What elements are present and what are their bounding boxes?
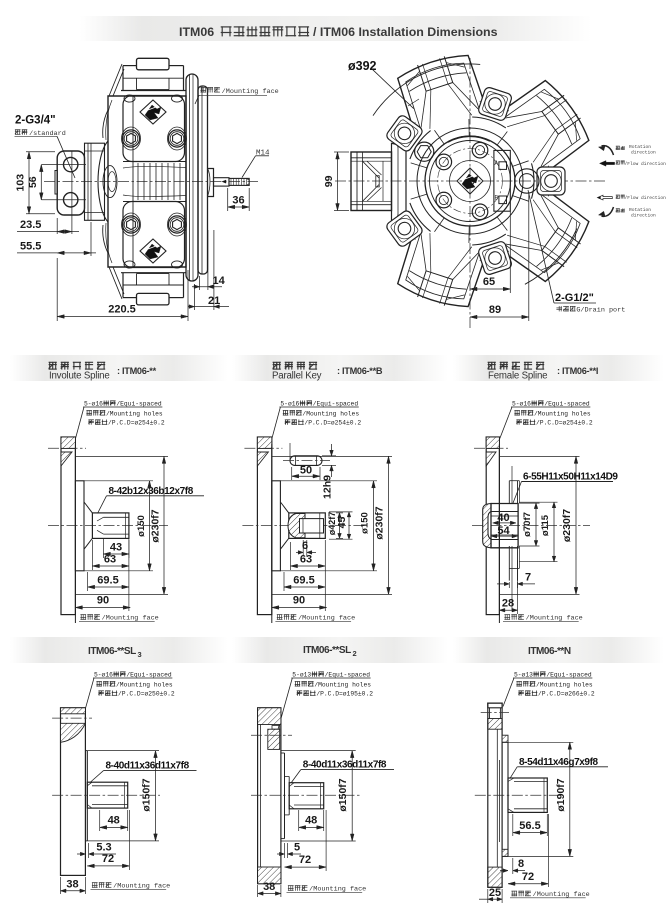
svg-text:: ITM06-**: : ITM06-** — [117, 366, 157, 376]
svg-text:14: 14 — [213, 275, 226, 287]
svg-text:28: 28 — [502, 598, 514, 610]
svg-text:ø190f7: ø190f7 — [555, 778, 567, 811]
svg-text:65: 65 — [483, 276, 495, 288]
svg-text:/Flow direction: /Flow direction — [625, 161, 667, 167]
svg-text:ITM06-**N: ITM06-**N — [528, 646, 571, 657]
svg-text:ITM06-**SL: ITM06-**SL — [88, 646, 136, 657]
svg-text:2-G1/2": 2-G1/2" — [555, 292, 594, 304]
svg-text:G/Drain port: G/Drain port — [576, 307, 625, 315]
svg-text:/P.C.D=ø195±0.2: /P.C.D=ø195±0.2 — [316, 691, 373, 698]
svg-text:8: 8 — [518, 858, 524, 870]
svg-text:/Mounting holes: /Mounting holes — [106, 410, 163, 417]
svg-text:54: 54 — [497, 525, 510, 537]
svg-text:ø150f7: ø150f7 — [337, 778, 349, 811]
svg-text:/P.C.D=ø254±0.2: /P.C.D=ø254±0.2 — [108, 420, 165, 427]
svg-text:/Mounting face: /Mounting face — [222, 88, 279, 96]
svg-text:63: 63 — [300, 554, 312, 566]
svg-text:: ITM06-**I: : ITM06-**I — [557, 366, 598, 376]
svg-text:63: 63 — [104, 554, 116, 566]
svg-text:5-ø16: 5-ø16 — [512, 401, 531, 408]
svg-text:55.5: 55.5 — [20, 240, 41, 252]
svg-text:5.3: 5.3 — [96, 842, 111, 854]
svg-text:6: 6 — [302, 540, 308, 552]
svg-text:/Mounting holes: /Mounting holes — [536, 681, 593, 688]
svg-text:90: 90 — [293, 595, 305, 607]
svg-text:/Equi-spaced: /Equi-spaced — [313, 401, 359, 408]
svg-text:5-ø13: 5-ø13 — [292, 672, 311, 679]
svg-text:89: 89 — [489, 304, 501, 316]
svg-text:ø70f7: ø70f7 — [522, 512, 533, 537]
svg-text:ø115: ø115 — [540, 514, 551, 536]
svg-text:12h9: 12h9 — [322, 475, 334, 499]
svg-text:48: 48 — [108, 815, 120, 827]
svg-text:69.5: 69.5 — [293, 575, 314, 587]
svg-text:25: 25 — [489, 887, 501, 899]
svg-text:: ITM06-**B: : ITM06-**B — [337, 366, 383, 376]
svg-text:B: B — [495, 195, 499, 202]
svg-text:5: 5 — [294, 842, 300, 854]
svg-text:/Equi-spaced: /Equi-spaced — [126, 672, 172, 679]
svg-text:ø230f7: ø230f7 — [374, 506, 386, 539]
svg-text:99: 99 — [323, 175, 335, 187]
svg-text:72: 72 — [522, 871, 534, 883]
svg-text:3: 3 — [138, 650, 142, 659]
svg-text:ITM06-**SL: ITM06-**SL — [303, 645, 351, 656]
svg-text:/Mounting holes: /Mounting holes — [534, 410, 591, 417]
svg-text:ø392: ø392 — [348, 59, 377, 73]
svg-text:Involute Spline: Involute Spline — [49, 370, 110, 381]
svg-text:direction: direction — [631, 150, 656, 156]
svg-text:56: 56 — [27, 176, 39, 188]
svg-text:/P.C.D=ø250±0.2: /P.C.D=ø250±0.2 — [118, 691, 175, 698]
svg-text:/Equi-spaced: /Equi-spaced — [325, 672, 371, 679]
svg-text:5-ø16: 5-ø16 — [280, 401, 299, 408]
svg-text:5-ø16: 5-ø16 — [94, 672, 113, 679]
svg-text:/P.C.D=ø266±0.2: /P.C.D=ø266±0.2 — [538, 691, 595, 698]
svg-text:220.5: 220.5 — [108, 304, 136, 316]
svg-text:90: 90 — [97, 595, 109, 607]
svg-text:40: 40 — [497, 512, 509, 524]
svg-text:ø150: ø150 — [136, 515, 147, 537]
svg-text:/Mounting holes: /Mounting holes — [314, 681, 371, 688]
svg-text:69.5: 69.5 — [97, 575, 118, 587]
svg-text:5-ø16: 5-ø16 — [84, 401, 103, 408]
svg-text:7: 7 — [525, 572, 531, 584]
svg-text:A: A — [495, 160, 499, 167]
svg-text:36: 36 — [232, 195, 244, 207]
svg-text:6-55H11x50H11x14D9: 6-55H11x50H11x14D9 — [523, 472, 618, 483]
svg-text:/ ITM06 Installation Dimension: / ITM06 Installation Dimensions — [313, 25, 498, 39]
svg-text:Parallel Key: Parallel Key — [272, 370, 322, 381]
svg-text:/Mounting holes: /Mounting holes — [302, 410, 359, 417]
svg-text:ø150f7: ø150f7 — [141, 778, 153, 811]
svg-text:/Equi-spaced: /Equi-spaced — [116, 401, 162, 408]
svg-text:direction: direction — [631, 213, 656, 219]
svg-text:21: 21 — [208, 295, 220, 307]
svg-text:/Mounting holes: /Mounting holes — [116, 681, 173, 688]
svg-text:23.5: 23.5 — [20, 219, 41, 231]
svg-text:45: 45 — [336, 517, 348, 529]
svg-text:2-G3/4": 2-G3/4" — [15, 115, 56, 127]
svg-text:ø230f7: ø230f7 — [150, 509, 162, 542]
svg-text:ø150: ø150 — [360, 512, 371, 534]
svg-text:8-40d11x36d11x7f8: 8-40d11x36d11x7f8 — [106, 761, 190, 772]
svg-text:/P.C.D=ø254±0.2: /P.C.D=ø254±0.2 — [304, 420, 361, 427]
svg-text:5-ø13: 5-ø13 — [514, 672, 533, 679]
svg-text:38: 38 — [66, 879, 78, 891]
svg-text:ITM06: ITM06 — [179, 25, 214, 39]
svg-text:50: 50 — [300, 465, 312, 477]
svg-text:103: 103 — [15, 174, 27, 192]
svg-text:72: 72 — [102, 853, 114, 865]
svg-text:72: 72 — [299, 854, 311, 866]
svg-text:Rotation: Rotation — [629, 144, 651, 150]
svg-text:M14: M14 — [256, 150, 270, 158]
svg-text:Rotation: Rotation — [629, 207, 651, 213]
svg-text:2: 2 — [353, 649, 357, 658]
svg-text:56.5: 56.5 — [519, 820, 540, 832]
svg-text:43: 43 — [110, 542, 122, 554]
svg-text:/Flow direction: /Flow direction — [625, 195, 667, 201]
svg-text:/P.C.D=ø254±0.2: /P.C.D=ø254±0.2 — [536, 420, 593, 427]
svg-text:/Equi-spaced: /Equi-spaced — [544, 401, 590, 408]
svg-text:48: 48 — [305, 815, 317, 827]
svg-text:8-40d11x36d11x7f8: 8-40d11x36d11x7f8 — [303, 760, 387, 771]
svg-text:ø230f7: ø230f7 — [561, 509, 573, 542]
svg-text:/Equi-spaced: /Equi-spaced — [546, 672, 592, 679]
svg-text:Female Spline: Female Spline — [488, 370, 547, 381]
svg-text:38: 38 — [263, 881, 275, 893]
